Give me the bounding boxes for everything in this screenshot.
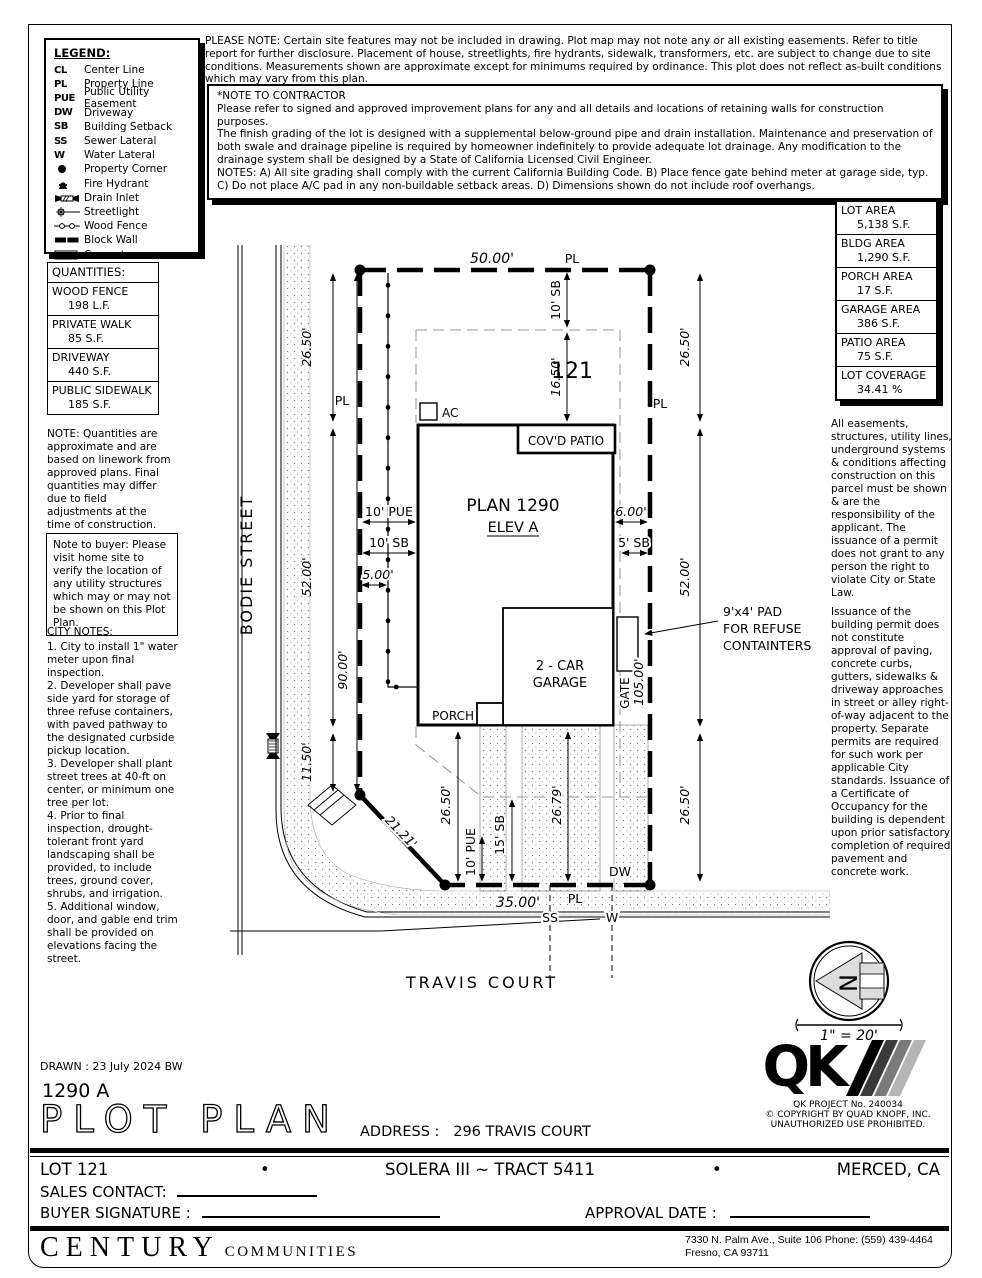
legend-item-w: WWater Lateral — [54, 148, 192, 162]
contractor-note-p2: The finish grading of the lot is designe… — [217, 128, 933, 166]
legend-item-streetlight: Streetlight — [54, 205, 192, 219]
pad-callout-3: CONTAINTERS — [723, 638, 811, 653]
qk-logo-stripes — [846, 1040, 934, 1096]
contractor-note-title: *NOTE TO CONTRACTOR — [217, 90, 933, 103]
city-label: MERCED, CA — [740, 1160, 940, 1179]
dim-gap-right: 6.00' — [615, 504, 646, 519]
private-walk-concrete — [480, 725, 506, 891]
pl-label-right: PL — [653, 396, 668, 411]
north-letter: N — [835, 974, 863, 992]
concrete-icon — [54, 249, 84, 261]
pl-label-bottom: PL — [568, 891, 583, 906]
quantities-table: QUANTITIES: WOOD FENCE198 L.F. PRIVATE W… — [47, 262, 159, 415]
pad-callout-2: FOR REFUSE — [723, 621, 802, 636]
dim-right-low: 26.50' — [677, 785, 692, 824]
legend-item-pue: PUEPublic Utility Easement — [54, 91, 192, 105]
address-value: 296 TRAVIS COURT — [453, 1124, 591, 1140]
table-row: BLDG AREA1,290 S.F. — [837, 234, 936, 267]
titleblock-divider-bottom — [30, 1226, 949, 1231]
dim-sb-front2: 15' SB — [492, 815, 507, 855]
curb-ramp — [308, 785, 356, 825]
buyer-signature-row: BUYER SIGNATURE : APPROVAL DATE : — [40, 1204, 950, 1222]
table-row: WOOD FENCE198 L.F. — [48, 282, 158, 315]
dim-top-width: 50.00' — [470, 251, 514, 267]
city-note-5: 5. Additional window, door, and gable en… — [47, 901, 183, 966]
legend-item-ss: SSSewer Lateral — [54, 134, 192, 148]
qk-logo-block: QK QK PROJECT No. 240034 © COPYRIGHT BY … — [753, 1040, 943, 1130]
lot-label: LOT 121 — [40, 1160, 108, 1179]
tract-label: SOLERA III ~ TRACT 5411 — [300, 1160, 680, 1179]
pad-callout-leader — [645, 621, 718, 634]
dim-pue-side: 10' PUE — [365, 504, 413, 519]
porch-label: PORCH — [432, 709, 474, 723]
wood-fence-icon — [54, 220, 84, 232]
dim-right-mid: 52.00' — [677, 557, 692, 596]
easements-p1: All easements, structures, utility lines… — [831, 418, 953, 600]
legend-item-concrete: Concrete — [54, 247, 192, 261]
address-label: ADDRESS : — [360, 1124, 439, 1140]
legend-item-drain-inlet: Drain Inlet — [54, 191, 192, 205]
dim-left-top: 26.50' — [299, 327, 314, 366]
property-corner-icon — [54, 163, 84, 175]
dim-front-inner: 16.50' — [548, 357, 563, 396]
drawn-date: DRAWN : 23 July 2024 BW — [40, 1060, 183, 1073]
contractor-note-box: *NOTE TO CONTRACTOR Please refer to sign… — [207, 84, 943, 200]
dw-label: DW — [609, 864, 631, 879]
legend-item-block-wall: Block Wall — [54, 233, 192, 247]
dim-sb-side: 10' SB — [369, 535, 409, 550]
plot-plan-page: LEGEND: CLCenter Line PLProperty Line PU… — [0, 0, 982, 1278]
ac-pad — [420, 403, 437, 420]
dim-sb-right: 5' SB — [618, 535, 650, 550]
sales-contact-row: SALES CONTACT: — [40, 1183, 317, 1201]
dim-bottom-width: 35.00' — [496, 895, 540, 911]
city-note-3: 3. Developer shall plant street trees at… — [47, 758, 183, 810]
builder-name: CENTURY — [40, 1232, 220, 1263]
dim-sb-front: 10' SB — [548, 280, 563, 320]
please-note-text: PLEASE NOTE: Certain site features may n… — [205, 35, 942, 86]
pl-label-top: PL — [565, 251, 580, 266]
dim-rear-left: 26.50' — [438, 785, 453, 824]
city-note-4: 4. Prior to final inspection, drought-to… — [47, 810, 183, 901]
contractor-note-p1: Please refer to signed and approved impr… — [217, 103, 933, 129]
dim-left-mid: 52.00' — [299, 557, 314, 596]
gate-label: GATE — [618, 677, 632, 709]
site-plan-drawing: 50.00' PL PL PL PL 121 10' SB 16.50' 26.… — [230, 245, 830, 1005]
easements-p2: Issuance of the building permit does not… — [831, 606, 953, 879]
drain-inlet-icon — [54, 192, 84, 204]
dim-left-low: 11.50' — [299, 742, 314, 781]
qk-project-number: QK PROJECT No. 240034 — [753, 1100, 943, 1110]
city-notes-title: CITY NOTES: — [47, 626, 183, 639]
builder-row: CENTURY COMMUNITIES 7330 N. Palm Ave., S… — [40, 1232, 950, 1264]
elevation-label: ELEV A — [488, 520, 539, 536]
table-row: DRIVEWAY440 S.F. — [48, 348, 158, 381]
ac-label: AC — [442, 406, 458, 420]
w-label: W — [606, 910, 618, 925]
office-line-2: Fresno, CA 93711 — [685, 1247, 933, 1260]
dim-diag: 21.21' — [382, 813, 420, 852]
patio-label: COV'D PATIO — [528, 434, 604, 448]
dim-pue-front: 10' PUE — [463, 828, 478, 876]
legend-item-property-corner: Property Corner — [54, 162, 192, 176]
dim-right-total: 105.00' — [631, 658, 646, 705]
builder-office: 7330 N. Palm Ave., Suite 106 Phone: (559… — [685, 1234, 933, 1260]
approval-date-field — [730, 1204, 870, 1218]
block-wall-icon — [54, 234, 84, 246]
quantities-title: QUANTITIES: — [48, 263, 158, 282]
table-row: GARAGE AREA386 S.F. — [837, 300, 936, 333]
street-name-left: BODIE STREET — [237, 495, 256, 636]
wood-fence — [388, 273, 418, 687]
legend-item-wood-fence: Wood Fence — [54, 219, 192, 233]
garage-label-2: GARAGE — [533, 676, 587, 691]
legend-item-fire-hydrant: Fire Hydrant — [54, 177, 192, 191]
city-notes: CITY NOTES: 1. City to install 1" water … — [47, 626, 183, 966]
table-row: PATIO AREA75 S.F. — [837, 333, 936, 366]
table-row: PUBLIC SIDEWALK185 S.F. — [48, 381, 158, 414]
easements-note: All easements, structures, utility lines… — [831, 418, 953, 879]
house-footprint — [418, 403, 638, 725]
plan-name: PLAN 1290 — [466, 496, 559, 516]
buyer-signature-label: BUYER SIGNATURE : — [40, 1204, 191, 1222]
table-row: LOT COVERAGE34.41 % — [837, 366, 936, 399]
streetlight-icon — [54, 206, 84, 218]
qk-logo-text: QK — [763, 1040, 844, 1096]
buyer-signature-field — [202, 1204, 440, 1218]
drain-inlet-symbol — [266, 733, 280, 759]
areas-table: LOT AREA5,138 S.F. BLDG AREA1,290 S.F. P… — [835, 200, 938, 401]
lot-row: LOT 121 • SOLERA III ~ TRACT 5411 • MERC… — [0, 1160, 982, 1182]
qk-unauthorized: UNAUTHORIZED USE PROHIBITED. — [753, 1120, 943, 1130]
dim-right-top: 26.50' — [677, 327, 692, 366]
bullet-1: • — [260, 1160, 270, 1179]
table-row: LOT AREA5,138 S.F. — [837, 202, 936, 234]
ss-label: SS — [542, 910, 558, 925]
sheet-title: PLOT PLAN — [40, 1098, 341, 1141]
dim-drive-len: 26.79' — [549, 785, 564, 824]
centerline-symbol: CL — [54, 65, 84, 76]
street-name-bottom: TRAVIS COURT — [405, 973, 558, 992]
bullet-2: • — [712, 1160, 722, 1179]
fire-hydrant-icon — [54, 178, 84, 190]
qk-copyright: © COPYRIGHT BY QUAD KNOPF, INC. — [753, 1110, 943, 1120]
address-row: ADDRESS : 296 TRAVIS COURT — [360, 1124, 591, 1140]
table-row: PORCH AREA17 S.F. — [837, 267, 936, 300]
legend-title: LEGEND: — [54, 46, 192, 60]
office-line-1: 7330 N. Palm Ave., Suite 106 Phone: (559… — [685, 1234, 933, 1247]
titleblock-divider-top — [30, 1148, 949, 1157]
quantities-note: NOTE: Quantities are approximate and are… — [47, 428, 171, 532]
sales-contact-label: SALES CONTACT: — [40, 1183, 167, 1201]
pl-label-left: PL — [335, 393, 350, 408]
buyer-note-box: Note to buyer: Please visit home site to… — [46, 533, 178, 636]
city-note-2: 2. Developer shall pave side yard for st… — [47, 680, 183, 758]
legend-item-sb: SBBuilding Setback — [54, 120, 192, 134]
propertyline-symbol: PL — [54, 79, 84, 90]
city-note-1: 1. City to install 1" water meter upon f… — [47, 641, 183, 680]
legend-box: LEGEND: CLCenter Line PLProperty Line PU… — [44, 38, 200, 254]
pad-callout-1: 9'x4' PAD — [723, 604, 782, 619]
builder-suffix: COMMUNITIES — [225, 1244, 358, 1260]
dim-left-total: 90.00' — [335, 650, 350, 689]
sales-contact-field — [177, 1183, 317, 1197]
north-arrow: N 1" = 20' — [790, 933, 910, 1041]
dim-gap-left: 5.00' — [362, 567, 393, 582]
porch — [477, 703, 503, 725]
approval-date-label: APPROVAL DATE : — [585, 1204, 717, 1222]
table-row: PRIVATE WALK85 S.F. — [48, 315, 158, 348]
legend-item-centerline: CLCenter Line — [54, 63, 192, 77]
garage-label-1: 2 - CAR — [536, 659, 584, 674]
contractor-note-p3: NOTES: A) All site grading shall comply … — [217, 167, 933, 193]
